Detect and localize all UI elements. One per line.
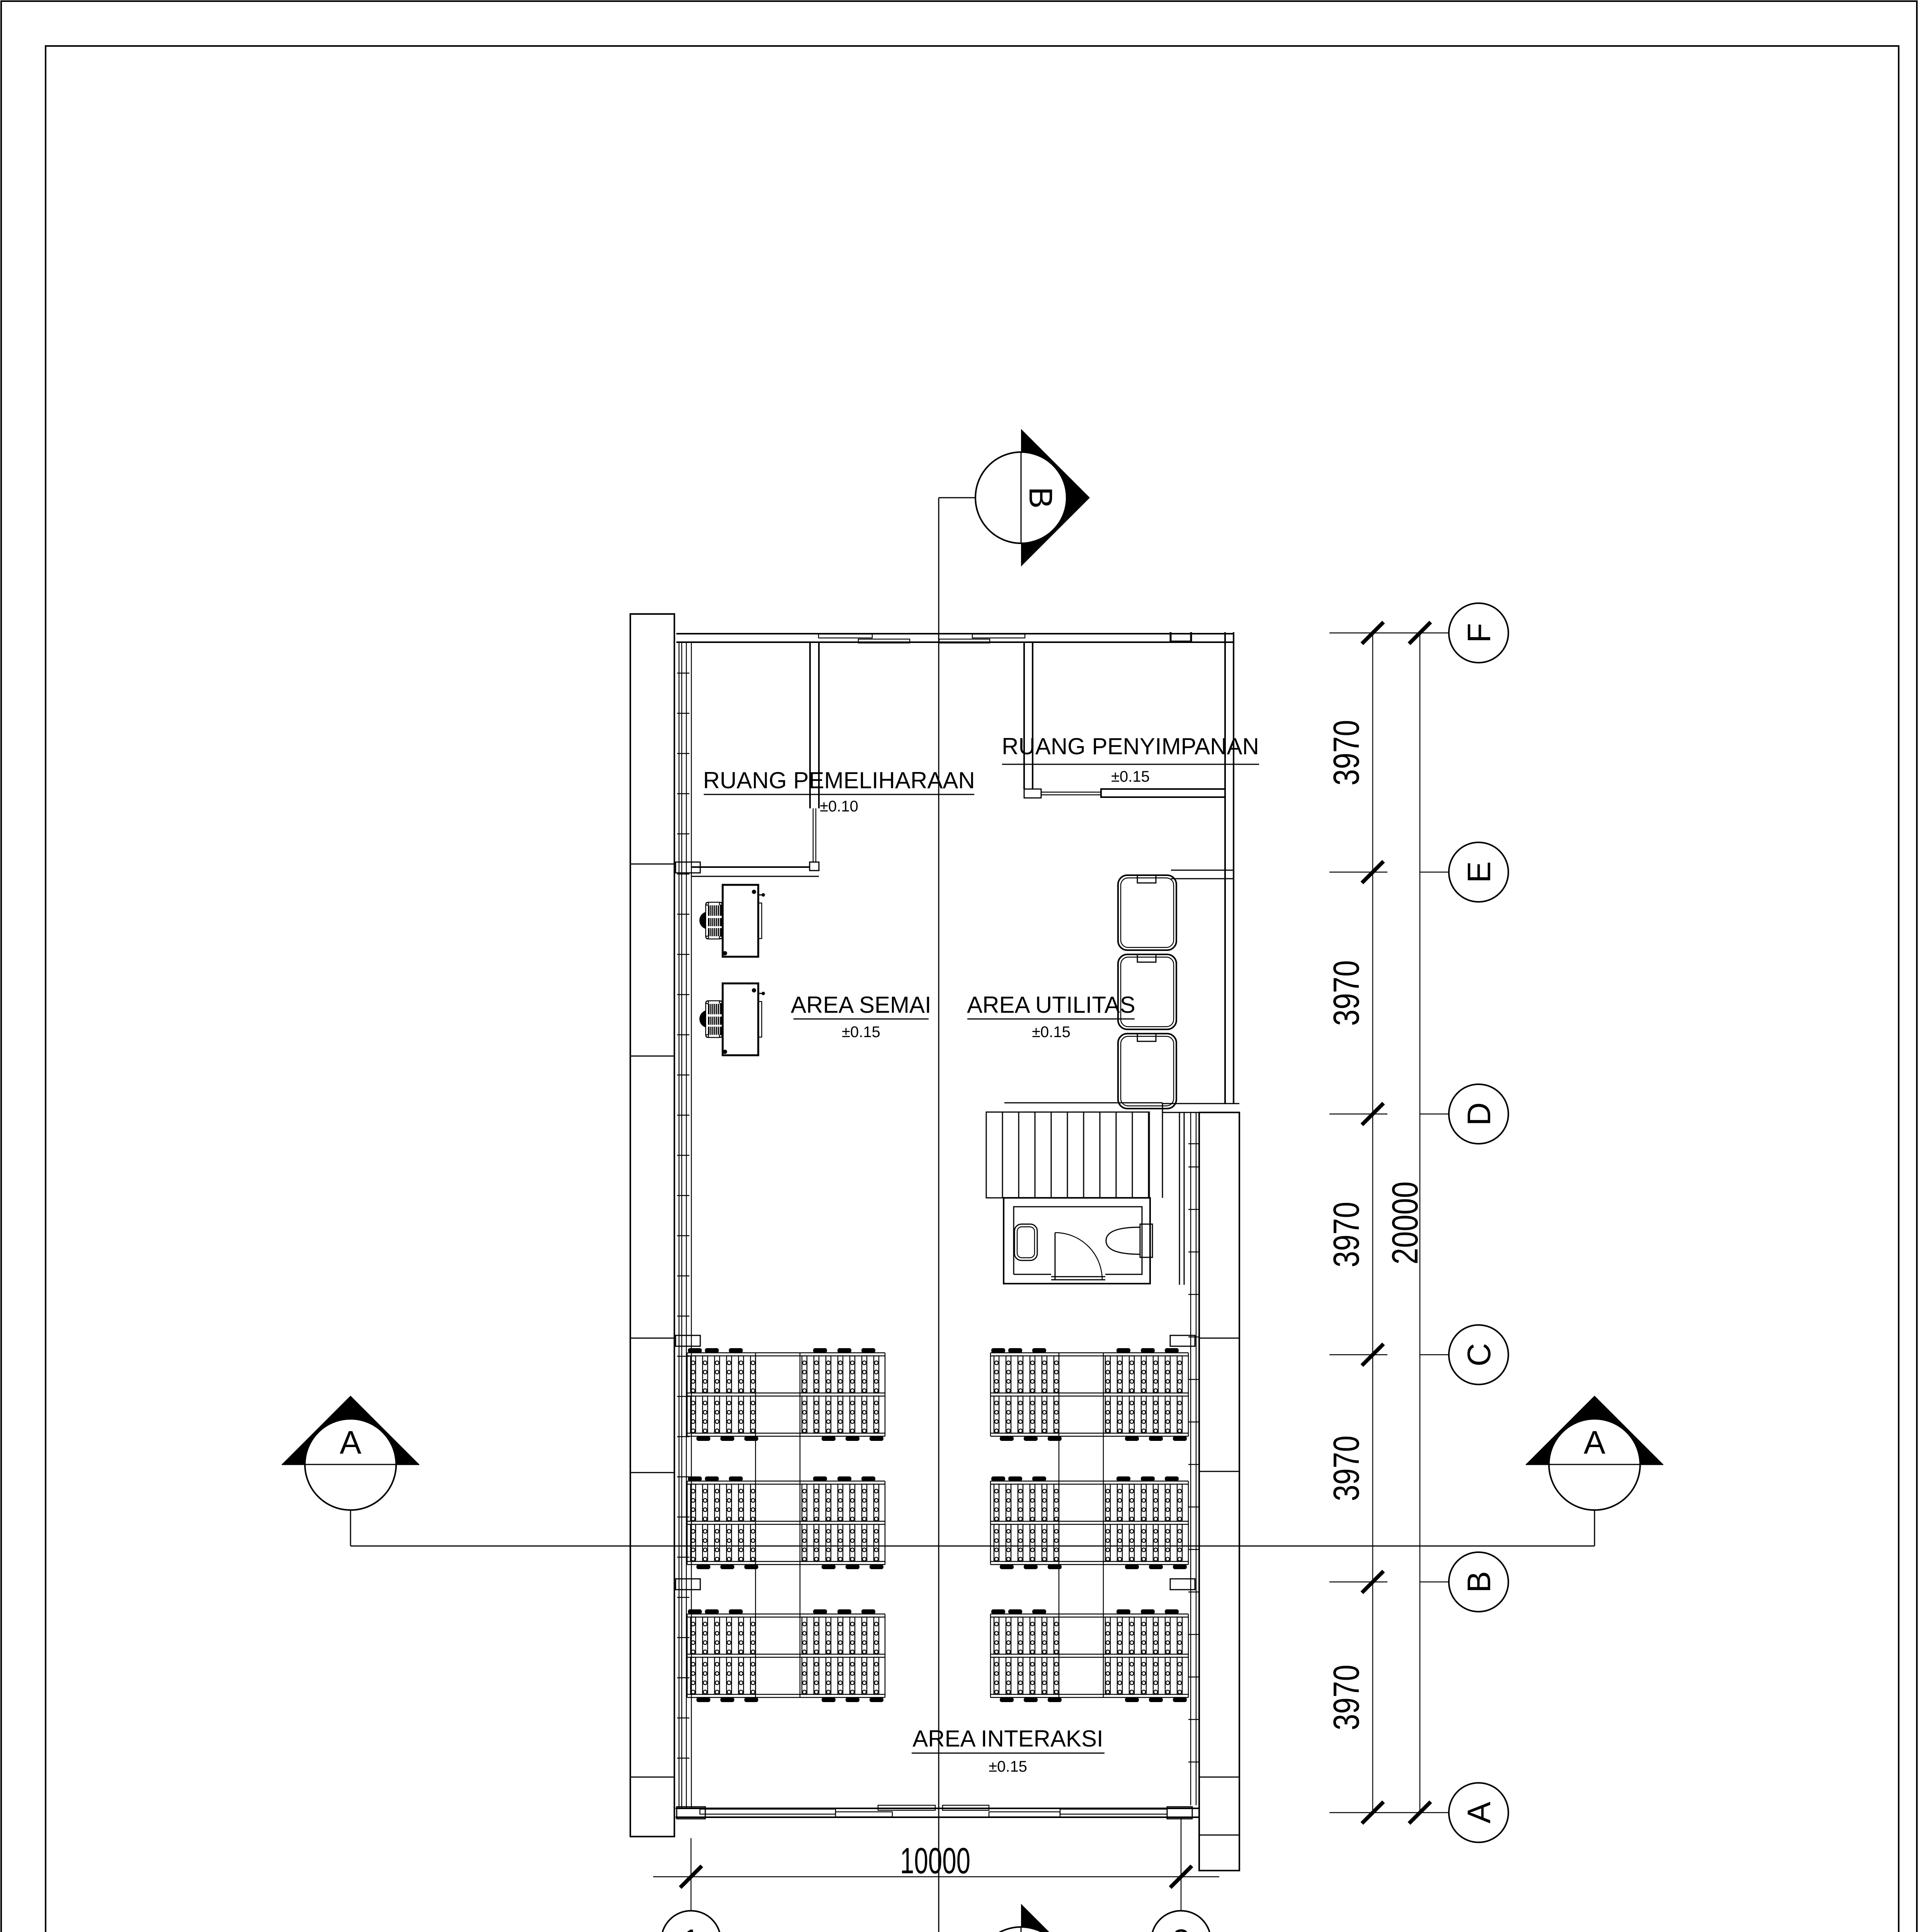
svg-text:3970: 3970: [1326, 720, 1367, 786]
svg-text:B: B: [1461, 1571, 1497, 1593]
svg-text:AREA UTILITAS: AREA UTILITAS: [967, 992, 1135, 1018]
svg-text:3970: 3970: [1326, 960, 1367, 1026]
svg-text:1: 1: [682, 1923, 700, 1932]
svg-text:3970: 3970: [1326, 1202, 1367, 1267]
svg-text:RUANG PENYIMPANAN: RUANG PENYIMPANAN: [1002, 733, 1259, 759]
svg-text:RUANG PEMELIHARAAN: RUANG PEMELIHARAAN: [703, 767, 975, 793]
svg-text:B: B: [1023, 487, 1059, 509]
svg-text:D: D: [1461, 1102, 1497, 1126]
svg-text:±0.15: ±0.15: [989, 1758, 1027, 1775]
svg-text:±0.15: ±0.15: [1032, 1024, 1070, 1041]
svg-text:±0.15: ±0.15: [1111, 768, 1150, 785]
svg-text:A: A: [340, 1424, 361, 1461]
svg-text:E: E: [1461, 861, 1497, 883]
svg-text:±0.15: ±0.15: [842, 1024, 880, 1041]
svg-text:F: F: [1461, 623, 1497, 643]
svg-text:3970: 3970: [1326, 1435, 1367, 1501]
svg-text:C: C: [1461, 1343, 1497, 1367]
svg-text:2: 2: [1172, 1923, 1190, 1932]
svg-text:AREA SEMAI: AREA SEMAI: [791, 992, 931, 1018]
svg-text:A: A: [1584, 1424, 1605, 1461]
svg-text:±0.10: ±0.10: [820, 798, 858, 815]
svg-text:20000: 20000: [1385, 1182, 1426, 1265]
svg-text:A: A: [1461, 1802, 1497, 1823]
svg-text:AREA INTERAKSI: AREA INTERAKSI: [912, 1726, 1103, 1752]
svg-text:3970: 3970: [1326, 1665, 1367, 1730]
svg-text:10000: 10000: [900, 1840, 970, 1881]
